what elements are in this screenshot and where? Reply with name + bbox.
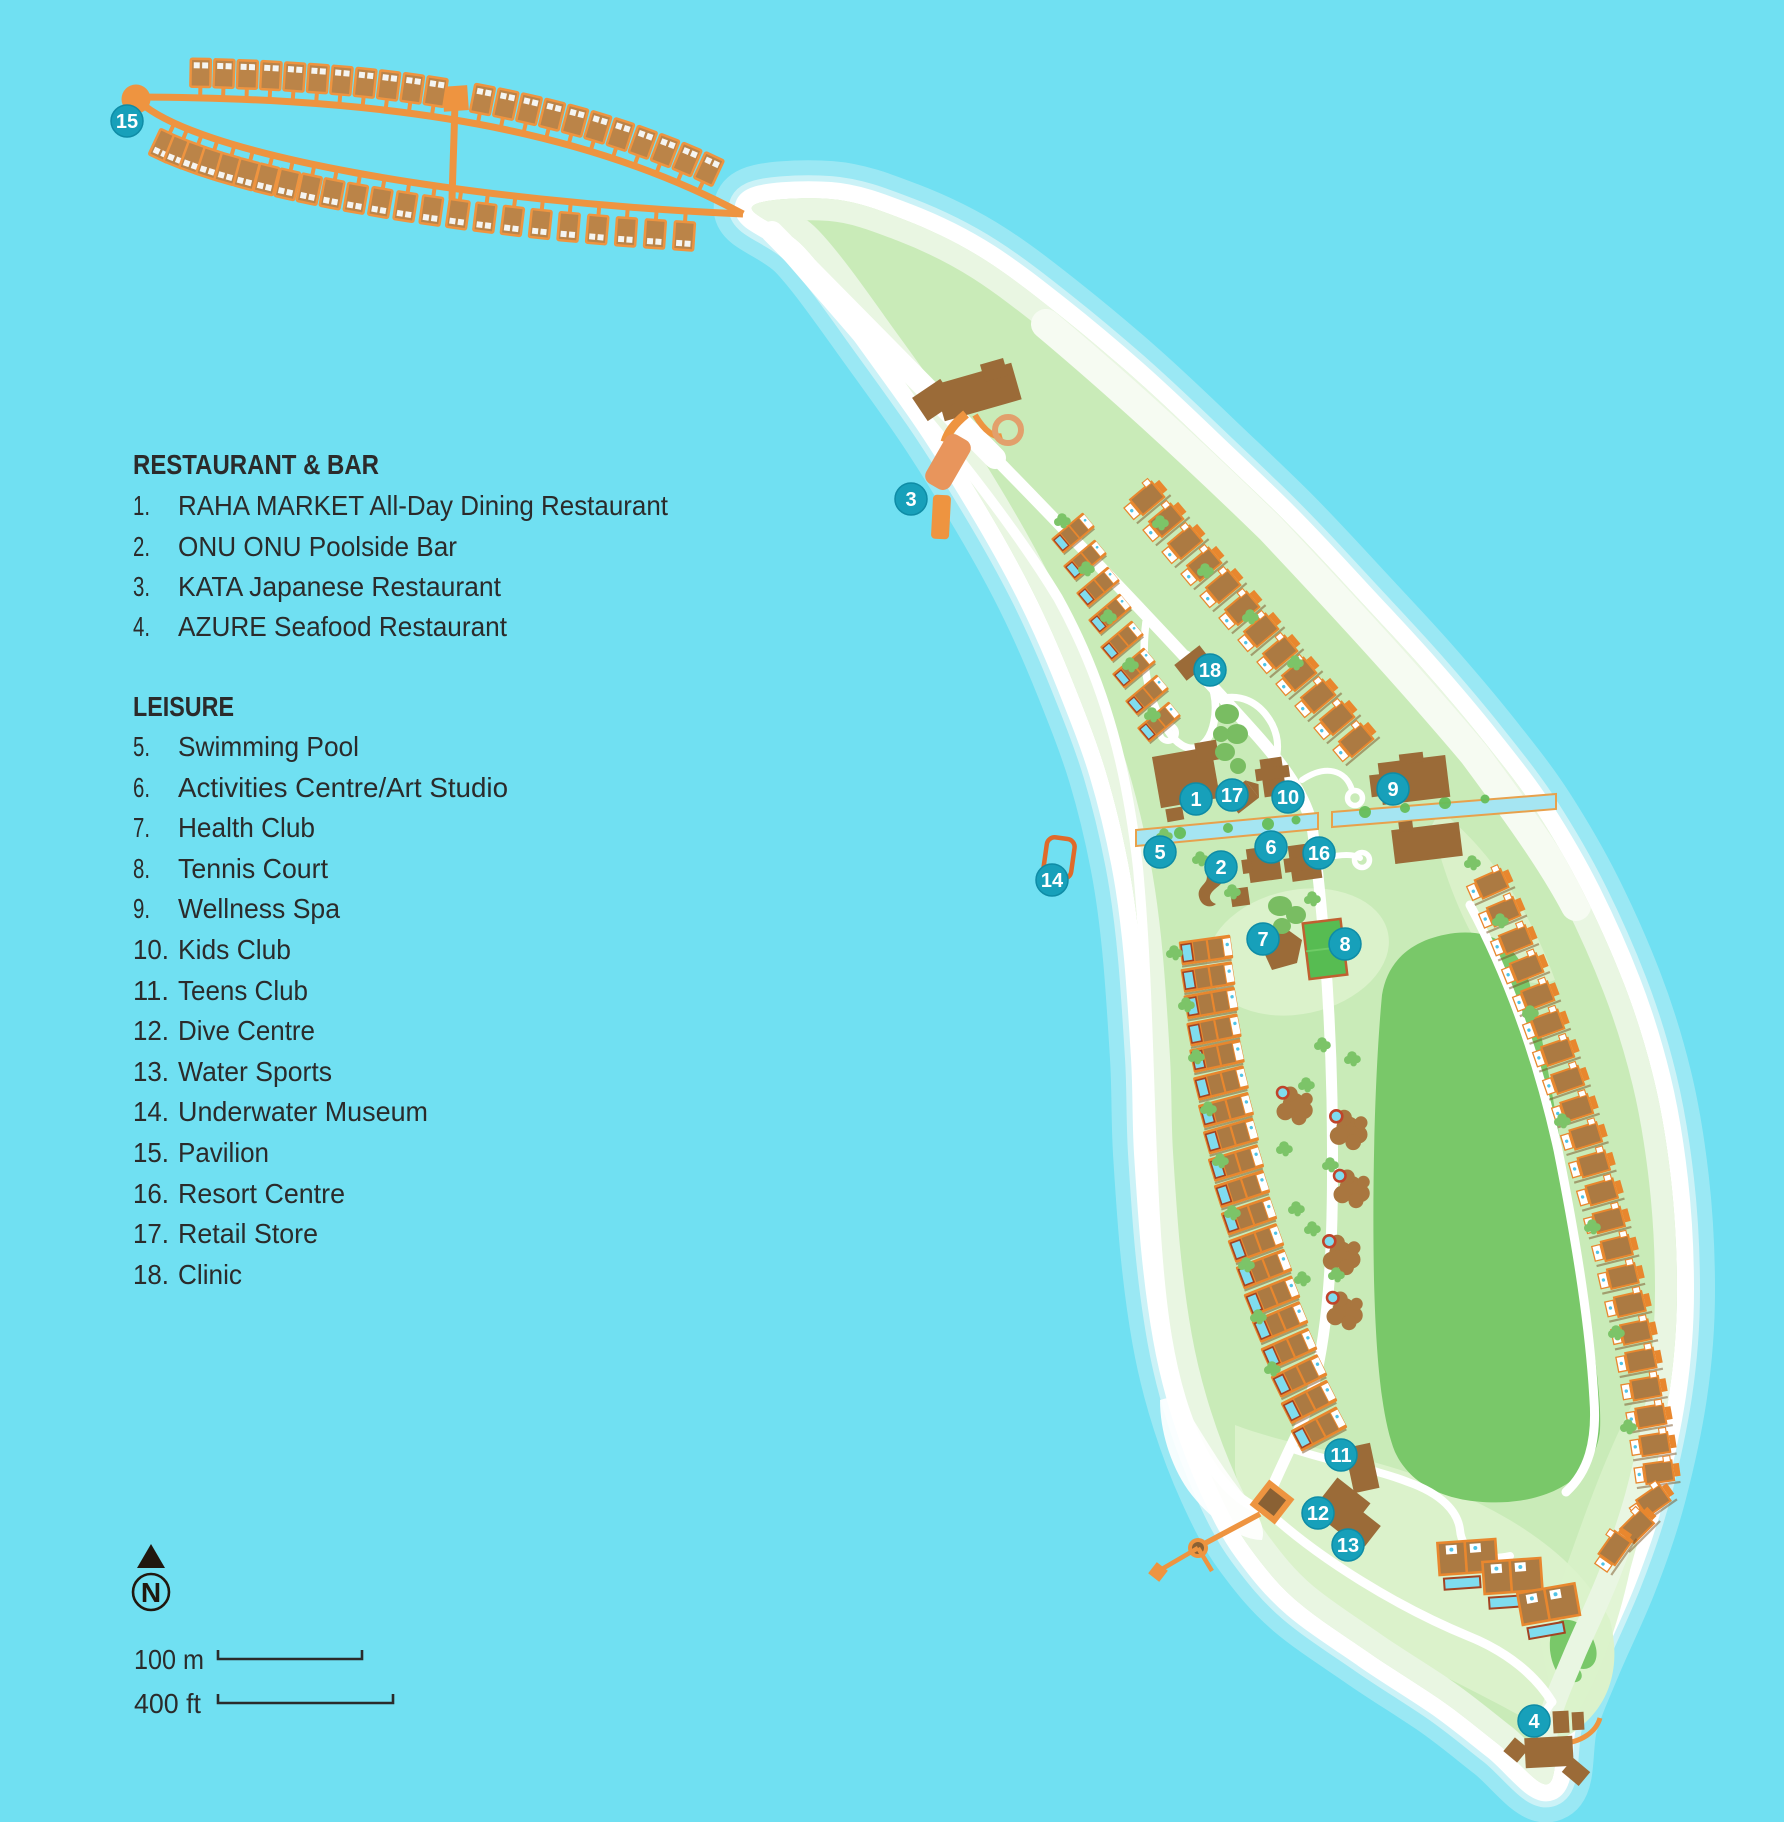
svg-text:6: 6 <box>1265 837 1276 859</box>
svg-text:Swimming Pool: Swimming Pool <box>178 731 359 762</box>
svg-text:2.: 2. <box>133 531 150 562</box>
svg-text:13: 13 <box>1337 1535 1359 1557</box>
svg-text:RESTAURANT & BAR: RESTAURANT & BAR <box>133 449 379 480</box>
svg-text:5.: 5. <box>133 731 150 762</box>
svg-text:Tennis Court: Tennis Court <box>178 853 328 884</box>
svg-text:3.: 3. <box>133 571 150 602</box>
svg-text:18: 18 <box>1199 660 1221 682</box>
svg-text:11.: 11. <box>133 975 169 1006</box>
svg-text:7.: 7. <box>133 812 150 843</box>
svg-text:2: 2 <box>1215 857 1226 879</box>
svg-text:AZURE Seafood Restaurant: AZURE Seafood Restaurant <box>178 611 507 642</box>
svg-text:14.: 14. <box>133 1096 169 1127</box>
svg-text:16: 16 <box>1308 843 1330 865</box>
svg-text:8: 8 <box>1339 934 1350 956</box>
svg-text:Wellness Spa: Wellness Spa <box>178 893 341 924</box>
svg-text:Water Sports: Water Sports <box>178 1056 332 1087</box>
svg-text:12: 12 <box>1307 1503 1329 1525</box>
svg-text:11: 11 <box>1330 1445 1351 1467</box>
svg-text:Clinic: Clinic <box>178 1259 242 1290</box>
svg-text:5: 5 <box>1154 842 1165 864</box>
svg-text:16.: 16. <box>133 1178 169 1209</box>
svg-text:Resort Centre: Resort Centre <box>178 1178 345 1209</box>
svg-text:17: 17 <box>1221 785 1243 807</box>
svg-text:1: 1 <box>1190 789 1201 811</box>
svg-text:17.: 17. <box>133 1218 169 1249</box>
svg-text:10.: 10. <box>133 934 169 965</box>
svg-text:3: 3 <box>905 489 916 511</box>
svg-text:1.: 1. <box>133 490 150 521</box>
svg-text:N: N <box>141 1577 161 1608</box>
svg-text:Retail Store: Retail Store <box>178 1218 318 1249</box>
svg-text:Kids Club: Kids Club <box>178 934 291 965</box>
svg-text:100 m: 100 m <box>134 1644 204 1675</box>
svg-text:7: 7 <box>1257 929 1268 951</box>
svg-text:18.: 18. <box>133 1259 169 1290</box>
svg-text:6.: 6. <box>133 772 150 803</box>
svg-text:RAHA MARKET All-Day Dining Res: RAHA MARKET All-Day Dining Restaurant <box>178 490 668 521</box>
svg-text:Pavilion: Pavilion <box>178 1137 269 1168</box>
svg-text:9.: 9. <box>133 893 150 924</box>
svg-text:10: 10 <box>1277 787 1299 809</box>
svg-text:15: 15 <box>116 111 138 133</box>
svg-text:KATA Japanese Restaurant: KATA Japanese Restaurant <box>178 571 501 602</box>
svg-text:Dive Centre: Dive Centre <box>178 1015 315 1046</box>
svg-text:9: 9 <box>1387 779 1398 801</box>
svg-text:400 ft: 400 ft <box>134 1688 201 1719</box>
svg-text:4.: 4. <box>133 611 150 642</box>
svg-text:Activities Centre/Art Studio: Activities Centre/Art Studio <box>178 772 508 803</box>
svg-text:ONU ONU Poolside Bar: ONU ONU Poolside Bar <box>178 531 457 562</box>
svg-text:Teens Club: Teens Club <box>178 975 308 1006</box>
svg-text:LEISURE: LEISURE <box>133 691 234 722</box>
svg-text:8.: 8. <box>133 853 150 884</box>
svg-text:15.: 15. <box>133 1137 169 1168</box>
svg-text:14: 14 <box>1041 870 1064 892</box>
svg-text:13.: 13. <box>133 1056 169 1087</box>
svg-text:4: 4 <box>1528 1711 1540 1733</box>
svg-text:Health Club: Health Club <box>178 812 315 843</box>
svg-text:12.: 12. <box>133 1015 169 1046</box>
svg-text:Underwater Museum: Underwater Museum <box>178 1096 428 1127</box>
